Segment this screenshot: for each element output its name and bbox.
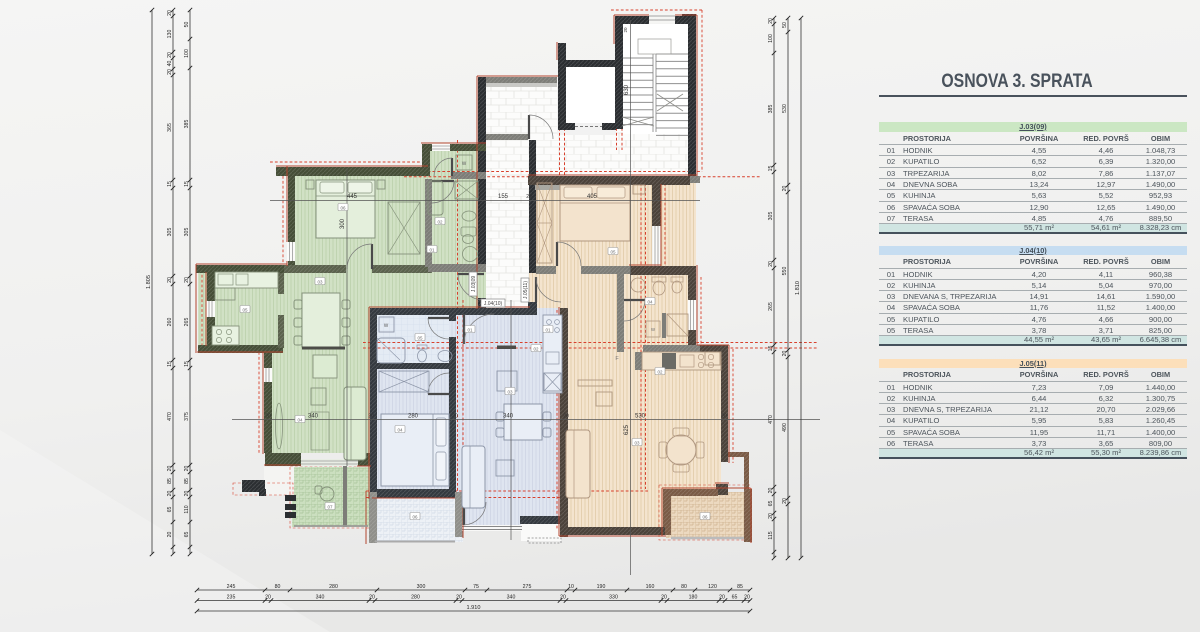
svg-text:190: 190 <box>597 584 606 590</box>
svg-text:20: 20 <box>782 351 788 357</box>
svg-text:06: 06 <box>340 206 346 211</box>
svg-text:20: 20 <box>167 69 173 75</box>
svg-text:1.810: 1.810 <box>795 281 801 295</box>
svg-text:1.910: 1.910 <box>467 605 481 611</box>
svg-text:02: 02 <box>657 370 663 375</box>
svg-text:20: 20 <box>265 414 271 420</box>
svg-text:J.03|09: J.03|09 <box>471 276 477 293</box>
svg-text:20: 20 <box>768 513 774 519</box>
svg-text:20: 20 <box>368 414 374 420</box>
svg-text:235: 235 <box>227 595 236 601</box>
svg-text:20: 20 <box>184 466 190 472</box>
svg-text:20: 20 <box>768 488 774 494</box>
svg-text:03: 03 <box>634 441 640 446</box>
svg-text:20: 20 <box>167 52 173 58</box>
svg-text:50: 50 <box>782 22 788 28</box>
svg-text:50: 50 <box>184 22 190 28</box>
svg-text:300: 300 <box>340 218 346 229</box>
svg-text:445: 445 <box>347 194 358 200</box>
svg-text:w: w <box>461 161 467 167</box>
svg-text:10: 10 <box>568 584 574 590</box>
svg-text:20: 20 <box>623 27 628 33</box>
svg-text:385: 385 <box>768 105 774 114</box>
svg-text:05: 05 <box>610 250 616 255</box>
svg-text:15: 15 <box>167 361 173 367</box>
svg-text:40: 40 <box>167 61 173 67</box>
svg-text:05: 05 <box>242 308 248 313</box>
svg-text:20: 20 <box>167 277 173 283</box>
svg-text:80: 80 <box>275 584 281 590</box>
svg-text:470: 470 <box>167 412 173 421</box>
svg-text:385: 385 <box>184 120 190 129</box>
svg-text:20: 20 <box>526 194 532 200</box>
svg-text:01: 01 <box>467 328 473 333</box>
svg-text:20: 20 <box>452 414 458 420</box>
svg-text:100: 100 <box>184 49 190 58</box>
svg-text:07: 07 <box>327 505 333 510</box>
svg-text:20: 20 <box>661 595 667 601</box>
svg-text:02: 02 <box>533 347 539 352</box>
svg-text:470: 470 <box>768 415 774 424</box>
svg-text:130: 130 <box>167 30 173 39</box>
svg-text:02: 02 <box>437 220 443 225</box>
svg-text:100: 100 <box>768 34 774 43</box>
svg-text:340: 340 <box>507 595 516 601</box>
svg-text:625: 625 <box>624 424 630 435</box>
svg-text:w: w <box>650 327 655 333</box>
svg-text:530: 530 <box>635 414 646 420</box>
svg-text:365: 365 <box>167 123 173 132</box>
svg-text:04: 04 <box>647 300 653 305</box>
svg-text:630: 630 <box>624 84 630 95</box>
svg-text:15: 15 <box>768 346 774 352</box>
svg-text:180: 180 <box>689 595 698 601</box>
svg-text:20: 20 <box>167 532 173 538</box>
svg-text:03: 03 <box>317 280 323 285</box>
svg-text:20: 20 <box>768 261 774 267</box>
svg-text:85: 85 <box>737 584 743 590</box>
svg-text:85: 85 <box>167 478 173 484</box>
svg-text:115: 115 <box>768 531 774 539</box>
svg-text:05: 05 <box>417 336 423 341</box>
svg-text:J.05(11): J.05(11) <box>523 281 529 299</box>
svg-text:340: 340 <box>503 414 514 420</box>
svg-text:J.04(10): J.04(10) <box>484 301 503 307</box>
svg-text:20: 20 <box>456 595 462 601</box>
svg-text:245: 245 <box>227 584 236 590</box>
svg-text:340: 340 <box>308 414 319 420</box>
svg-text:20: 20 <box>744 595 750 601</box>
svg-text:20: 20 <box>782 498 788 504</box>
svg-text:160: 160 <box>646 584 655 590</box>
svg-text:1.805: 1.805 <box>146 275 152 289</box>
svg-text:85: 85 <box>184 478 190 484</box>
svg-text:20: 20 <box>563 414 569 420</box>
svg-text:20: 20 <box>167 10 173 16</box>
svg-text:20: 20 <box>782 186 788 192</box>
svg-text:20: 20 <box>719 595 725 601</box>
svg-text:300: 300 <box>417 584 426 590</box>
svg-text:04: 04 <box>397 428 403 433</box>
svg-text:305: 305 <box>184 228 190 237</box>
svg-text:20: 20 <box>184 491 190 497</box>
svg-text:305: 305 <box>167 228 173 237</box>
svg-text:06: 06 <box>702 515 708 520</box>
svg-text:06: 06 <box>412 515 418 520</box>
svg-text:280: 280 <box>408 414 419 420</box>
svg-text:530: 530 <box>782 104 788 113</box>
svg-text:15: 15 <box>184 361 190 367</box>
svg-text:20: 20 <box>265 595 271 601</box>
svg-text:155: 155 <box>498 194 509 200</box>
svg-text:120: 120 <box>708 584 717 590</box>
svg-text:375: 375 <box>184 412 190 421</box>
svg-text:w: w <box>383 323 389 329</box>
svg-text:280: 280 <box>329 584 338 590</box>
svg-text:20: 20 <box>167 491 173 497</box>
svg-text:65: 65 <box>732 595 738 601</box>
svg-text:80: 80 <box>681 584 687 590</box>
svg-text:20: 20 <box>768 18 774 24</box>
svg-text:15: 15 <box>768 166 774 172</box>
svg-text:405: 405 <box>587 194 598 200</box>
svg-text:65: 65 <box>768 501 774 507</box>
svg-text:15: 15 <box>184 181 190 187</box>
svg-text:260: 260 <box>167 318 173 327</box>
svg-text:340: 340 <box>316 595 325 601</box>
svg-text:330: 330 <box>609 595 618 601</box>
svg-text:20: 20 <box>167 466 173 472</box>
svg-text:65: 65 <box>167 507 173 513</box>
svg-text:265: 265 <box>768 302 774 311</box>
svg-text:305: 305 <box>768 212 774 221</box>
svg-text:550: 550 <box>782 267 788 276</box>
svg-text:20: 20 <box>184 277 190 283</box>
svg-text:110: 110 <box>184 505 190 513</box>
svg-text:04: 04 <box>297 418 303 423</box>
svg-text:01: 01 <box>545 328 551 333</box>
svg-text:20: 20 <box>721 414 727 420</box>
svg-text:65: 65 <box>184 532 190 538</box>
svg-text:20: 20 <box>369 595 375 601</box>
svg-text:280: 280 <box>411 595 420 601</box>
svg-text:490: 490 <box>782 423 788 432</box>
svg-text:275: 275 <box>523 584 532 590</box>
svg-text:15: 15 <box>167 181 173 187</box>
svg-text:01: 01 <box>429 248 435 253</box>
svg-text:265: 265 <box>184 318 190 327</box>
svg-text:03: 03 <box>507 390 513 395</box>
svg-text:75: 75 <box>473 584 479 590</box>
svg-text:20: 20 <box>560 595 566 601</box>
